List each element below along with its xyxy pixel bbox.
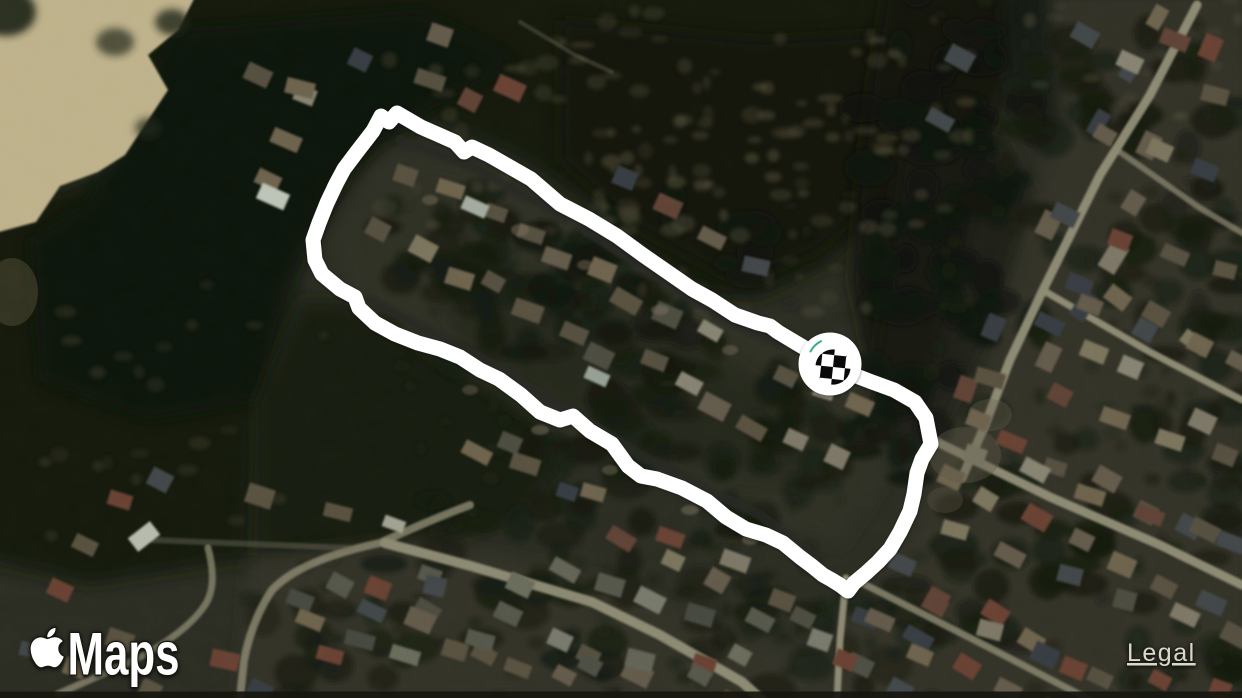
- svg-text:Maps: Maps: [68, 621, 180, 688]
- svg-text:Legal: Legal: [1127, 639, 1196, 667]
